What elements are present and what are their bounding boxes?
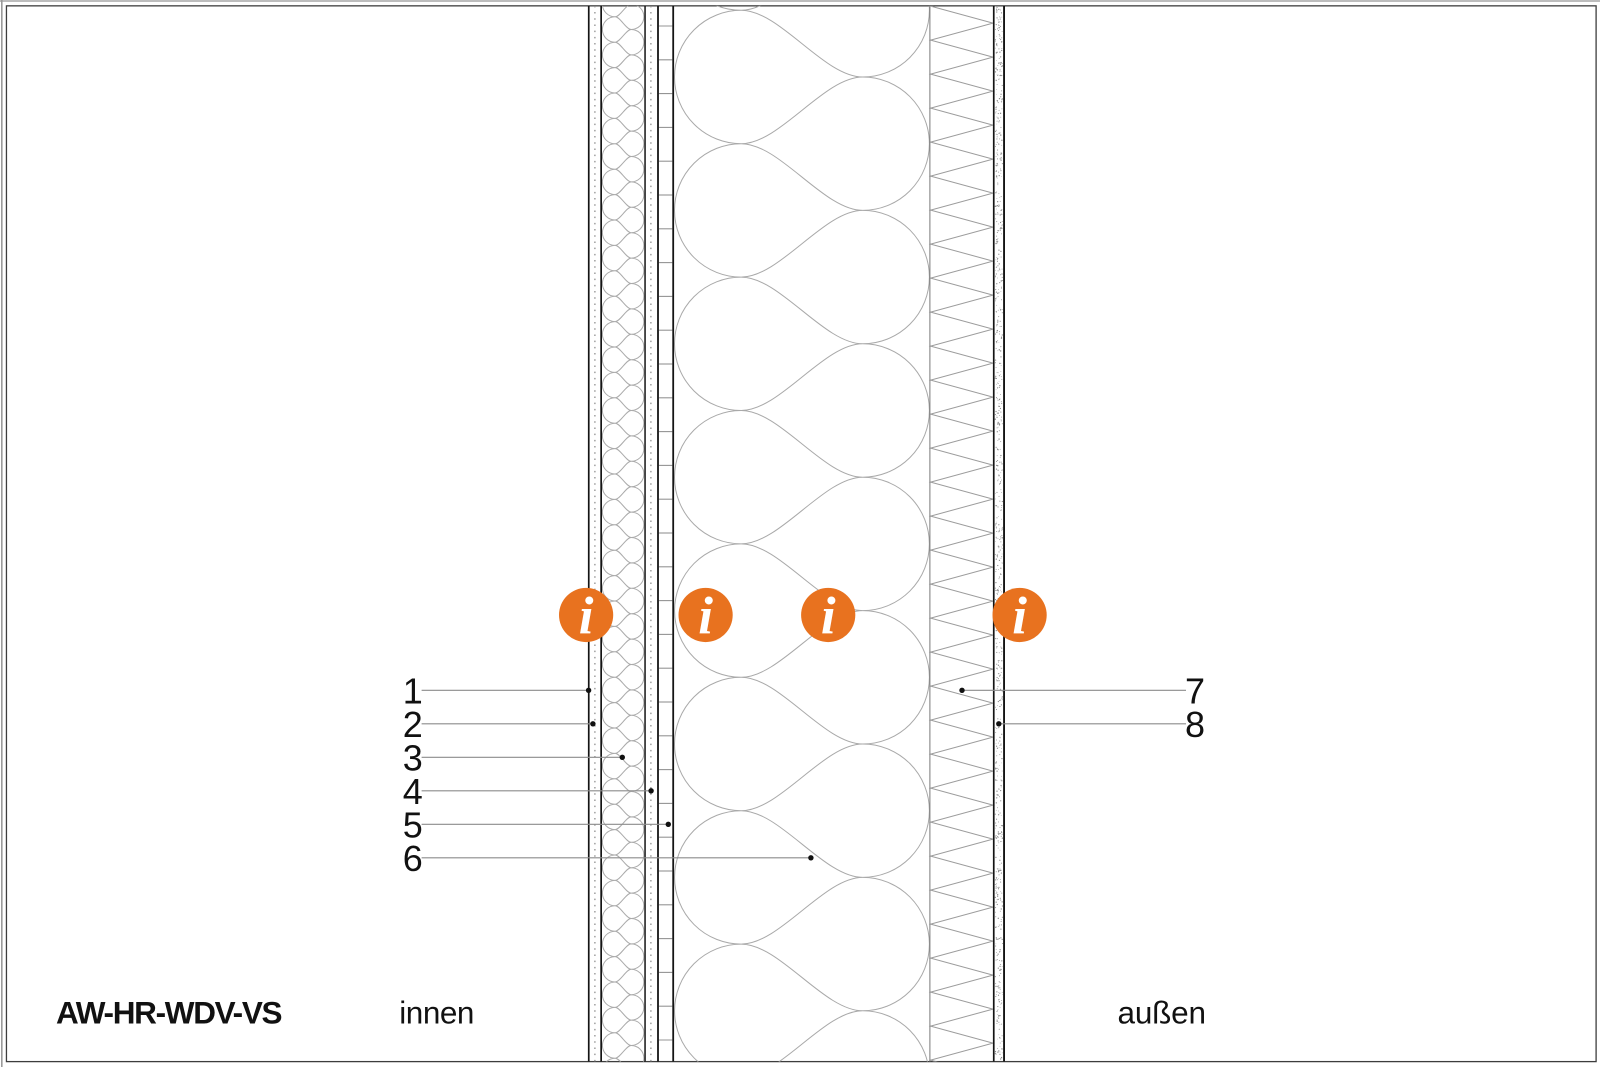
svg-text:i: i: [698, 588, 713, 646]
svg-text:außen: außen: [1118, 994, 1206, 1030]
svg-text:8: 8: [1185, 704, 1205, 745]
svg-text:i: i: [821, 588, 836, 646]
svg-text:i: i: [579, 588, 594, 646]
svg-text:i: i: [1012, 588, 1027, 646]
svg-text:AW-HR-WDV-VS: AW-HR-WDV-VS: [56, 994, 282, 1030]
svg-text:6: 6: [403, 838, 423, 879]
svg-text:innen: innen: [399, 994, 474, 1030]
